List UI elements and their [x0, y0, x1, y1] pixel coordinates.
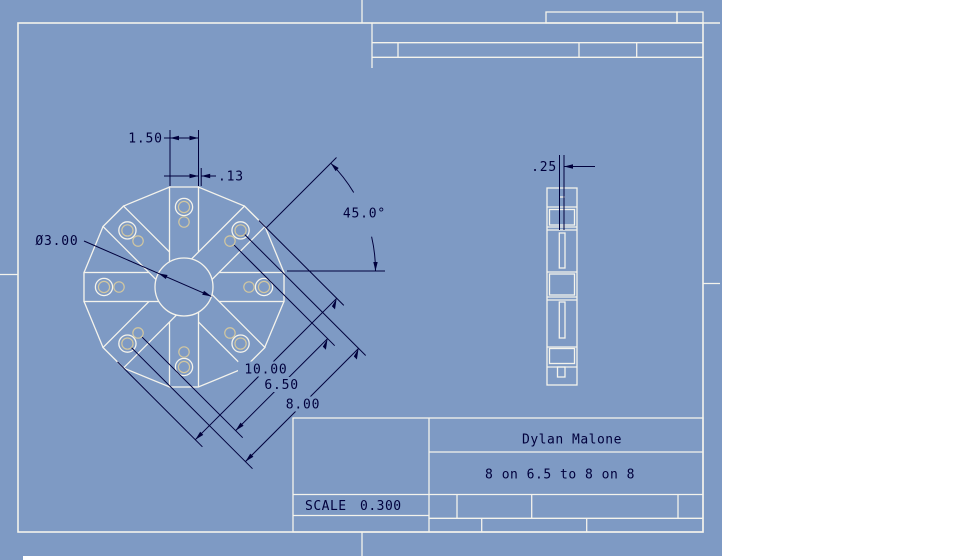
dim-text[interactable]: Ø3.00 [35, 234, 78, 249]
drawing-canvas: 1.50 .13 Ø3.00 45.0° 10.00 [0, 0, 960, 560]
cad-drawing-window: 1.50 .13 Ø3.00 45.0° 10.00 [0, 0, 960, 560]
dim-text[interactable]: 10.00 [244, 363, 287, 378]
scale-label: SCALE [305, 499, 347, 514]
author-text[interactable]: Dylan Malone [522, 433, 622, 448]
side-view[interactable] [547, 188, 577, 385]
drawing-sheet-corner [0, 556, 23, 560]
dim-text[interactable]: .13 [218, 170, 244, 185]
scale-value[interactable]: 0.300 [360, 499, 402, 514]
drawing-title-text[interactable]: 8 on 6.5 to 8 on 8 [485, 468, 635, 483]
dim-text[interactable]: 6.50 [264, 378, 299, 393]
dim-text[interactable]: 1.50 [128, 132, 163, 147]
dim-text[interactable]: 45.0° [343, 207, 386, 222]
front-view[interactable] [84, 187, 284, 387]
dim-text[interactable]: 8.00 [286, 398, 321, 413]
center-bore[interactable] [155, 258, 213, 316]
dim-text[interactable]: .25 [531, 160, 557, 175]
